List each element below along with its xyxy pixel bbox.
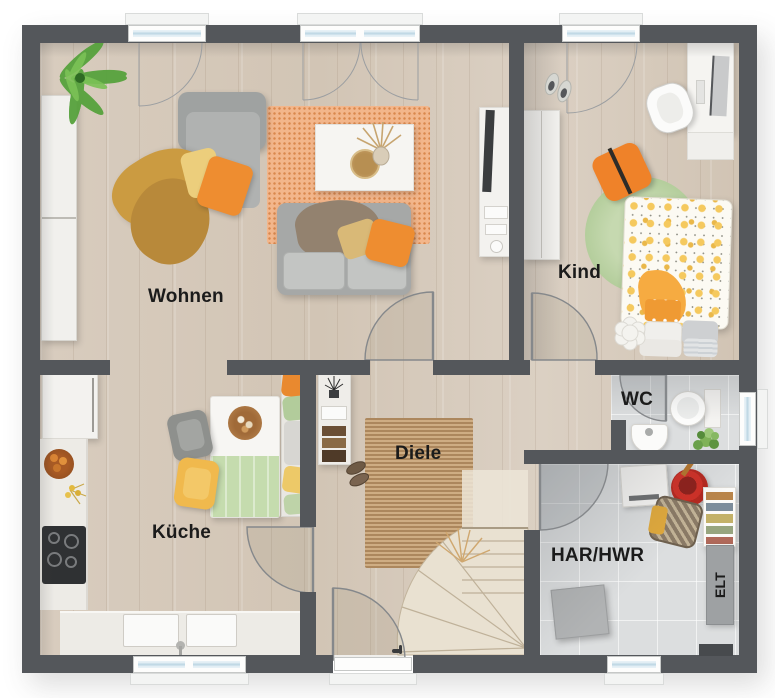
flower-cushion — [615, 317, 645, 350]
wall-kueche-top-a — [40, 360, 110, 375]
slippers — [343, 459, 372, 488]
room-label-kueche: Küche — [152, 522, 211, 544]
window-glass — [567, 30, 635, 37]
shelf-decor-twigs — [325, 376, 343, 398]
window-sill — [297, 13, 423, 25]
room-label-wc: WC — [621, 389, 653, 411]
window-glass — [612, 661, 656, 668]
window-sill — [130, 673, 249, 685]
door-arc-wohnen — [365, 292, 433, 360]
wall-wohnen-bottom-c — [433, 360, 530, 375]
wall-kueche-right-lower — [300, 592, 316, 655]
wall-left — [22, 25, 40, 673]
window-glass — [744, 397, 751, 441]
window-glass — [133, 30, 201, 37]
window-glass — [193, 661, 240, 668]
door-arc-kueche — [247, 527, 313, 593]
wall-kueche-right-upper — [300, 374, 316, 527]
door-handle — [399, 645, 402, 654]
wc-plant — [693, 428, 719, 450]
wall-wohnen-bottom-b — [227, 360, 370, 375]
wall-har-left — [524, 530, 540, 655]
window-glass — [364, 30, 415, 37]
wall-right — [739, 25, 757, 673]
room-label-kind: Kind — [558, 262, 601, 284]
slippers — [542, 72, 574, 104]
wall-bottom-right — [413, 655, 757, 673]
wall-kind-bottom — [595, 360, 739, 375]
room-label-diele: Diele — [395, 443, 441, 465]
kitchen-flowers — [65, 484, 86, 504]
window-glass — [138, 661, 185, 668]
floorplan: Wohnen Kind Küche Diele WC HAR/HWR ELT — [0, 0, 775, 698]
room-label-elt: ELT — [706, 545, 734, 625]
entrance-step — [329, 673, 417, 685]
staircase — [397, 470, 528, 655]
window-glass — [305, 30, 356, 37]
window-arcs — [139, 43, 637, 113]
wall-wohnen-kind — [509, 43, 524, 360]
wall-niche — [699, 644, 733, 656]
window-sill — [125, 13, 209, 25]
dried-plant — [357, 122, 401, 165]
window-sill — [559, 13, 643, 25]
room-label-har-hwr: HAR/HWR — [551, 545, 644, 567]
door-arc-har — [540, 462, 608, 530]
palm-plant — [56, 37, 127, 125]
door-arc-kind — [532, 293, 597, 360]
window-sill — [757, 389, 768, 449]
window-sill — [604, 673, 664, 685]
room-label-wohnen: Wohnen — [148, 286, 224, 308]
entrance-door — [334, 657, 412, 671]
plan-decorations — [0, 0, 775, 698]
wall-wc-bottom — [524, 450, 739, 464]
